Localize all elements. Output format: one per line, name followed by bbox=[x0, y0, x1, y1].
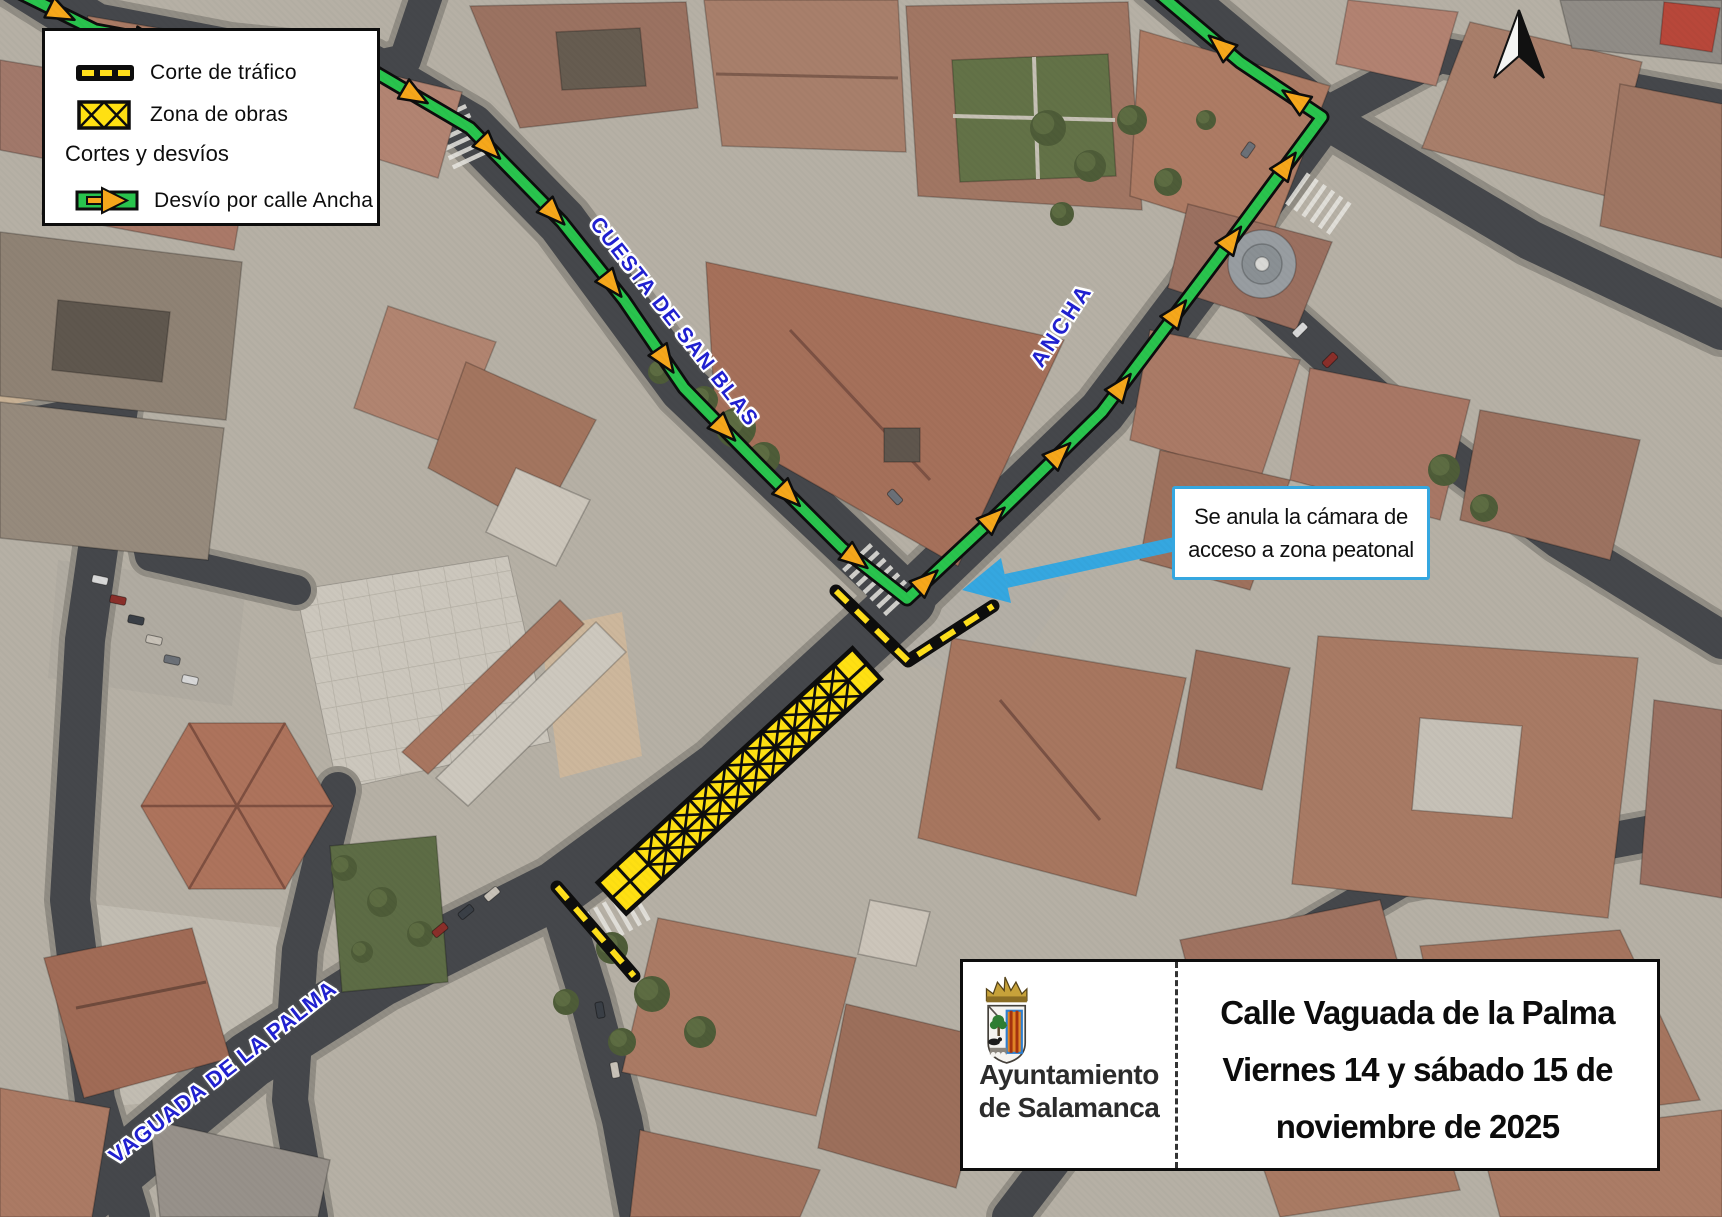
org-panel: Ayuntamiento de Salamanca bbox=[963, 962, 1178, 1168]
title-line3: noviembre de 2025 bbox=[1178, 1098, 1657, 1155]
org-line2: de Salamanca bbox=[963, 1091, 1175, 1124]
detour-swatch-icon bbox=[75, 186, 139, 216]
date-panel: Calle Vaguada de la Palma Viernes 14 y s… bbox=[1178, 962, 1657, 1168]
map-legend: Corte de tráfico Zona de obras Cortes y … bbox=[42, 28, 380, 226]
camera-callout: Se anula la cámara de acceso a zona peat… bbox=[1172, 486, 1430, 580]
legend-label-corte: Corte de tráfico bbox=[150, 61, 297, 85]
legend-item-corte: Corte de tráfico bbox=[75, 55, 297, 91]
traffic-cut-map: Corte de tráfico Zona de obras Cortes y … bbox=[0, 0, 1722, 1217]
legend-item-desvio: Desvío por calle Ancha bbox=[75, 183, 373, 219]
salamanca-coat-of-arms-icon bbox=[963, 972, 1047, 1068]
works-zone-swatch-icon bbox=[75, 99, 135, 131]
title-box: Ayuntamiento de Salamanca Calle Vaguada … bbox=[960, 959, 1660, 1171]
traffic-cut-swatch-icon bbox=[75, 63, 135, 83]
legend-label-obras: Zona de obras bbox=[150, 103, 288, 127]
legend-section-header: Cortes y desvíos bbox=[65, 139, 229, 169]
title-line1: Calle Vaguada de la Palma bbox=[1178, 984, 1657, 1041]
org-line1: Ayuntamiento bbox=[963, 1058, 1175, 1091]
legend-item-obras: Zona de obras bbox=[75, 97, 288, 133]
title-line2: Viernes 14 y sábado 15 de bbox=[1178, 1041, 1657, 1098]
callout-line1: Se anula la cámara de bbox=[1175, 500, 1427, 533]
north-arrow-icon bbox=[1486, 4, 1550, 88]
callout-line2: acceso a zona peatonal bbox=[1175, 533, 1427, 566]
legend-label-desvio: Desvío por calle Ancha bbox=[154, 189, 373, 213]
org-name: Ayuntamiento de Salamanca bbox=[963, 1058, 1175, 1124]
